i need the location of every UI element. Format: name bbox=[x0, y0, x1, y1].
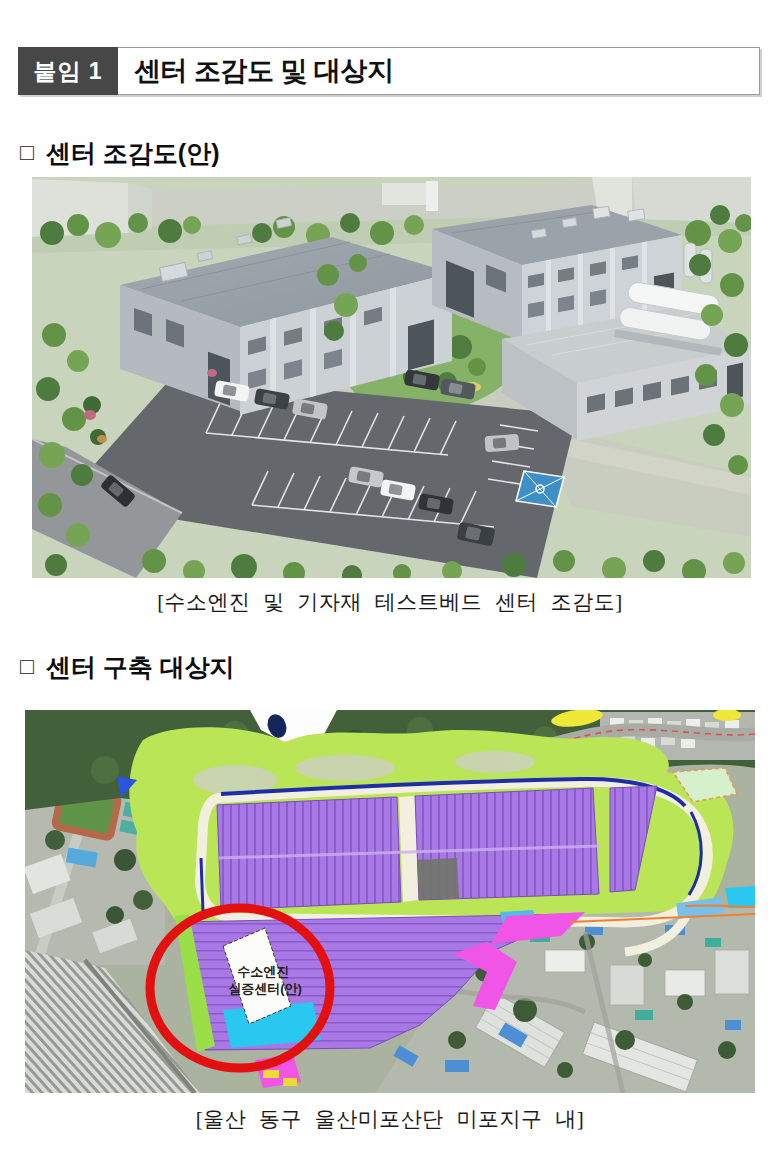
section-bullet: □ bbox=[20, 653, 34, 680]
figure-caption-birdseye: [수소엔진 및 기자재 테스트베드 센터 조감도] bbox=[0, 588, 780, 616]
figure-caption-site: [울산 동구 울산미포산단 미포지구 내] bbox=[0, 1105, 780, 1133]
section-heading-site: □ 센터 구축 대상지 bbox=[20, 652, 780, 682]
section-heading-text: 센터 조감도(안) bbox=[46, 137, 220, 170]
page-title: 센터 조감도 및 대상지 bbox=[118, 47, 760, 95]
handicap-space bbox=[516, 471, 564, 507]
section-heading-text: 센터 구축 대상지 bbox=[46, 651, 235, 684]
site-map-figure: 수소엔진 실증센터(안) bbox=[25, 710, 755, 1093]
center-birdseye-rendering bbox=[32, 177, 751, 578]
attachment-header: 붙임 1 센터 조감도 및 대상지 bbox=[18, 47, 760, 95]
site-location-map: 수소엔진 실증센터(안) bbox=[25, 710, 755, 1093]
section-heading-birdseye: □ 센터 조감도(안) bbox=[20, 138, 780, 168]
attachment-badge: 붙임 1 bbox=[18, 47, 118, 95]
center-birdseye-figure bbox=[32, 177, 751, 578]
section-bullet: □ bbox=[20, 139, 34, 166]
document-page: 붙임 1 센터 조감도 및 대상지 □ 센터 조감도(안) bbox=[0, 0, 780, 1149]
industrial-lot-purple bbox=[217, 786, 657, 910]
